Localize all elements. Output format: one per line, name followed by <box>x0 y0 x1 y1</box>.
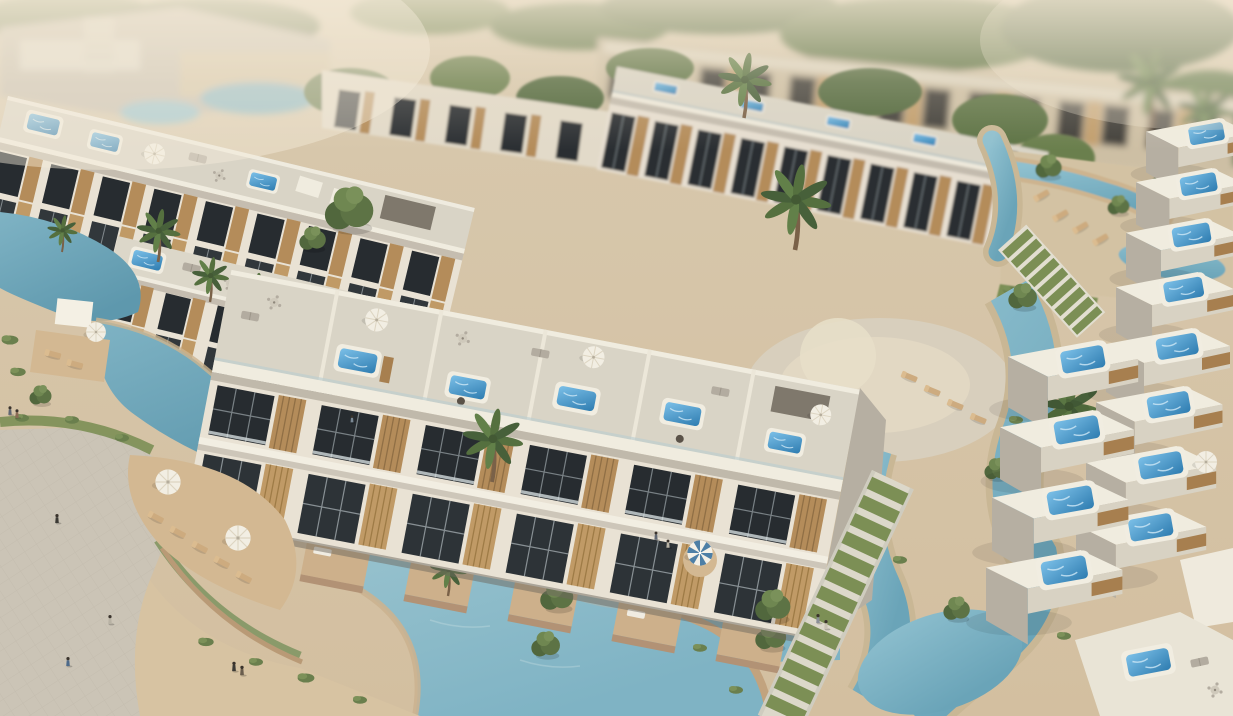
resort-aerial-render <box>0 0 1233 716</box>
shade-sail <box>55 298 94 328</box>
render-canvas <box>0 0 1233 716</box>
